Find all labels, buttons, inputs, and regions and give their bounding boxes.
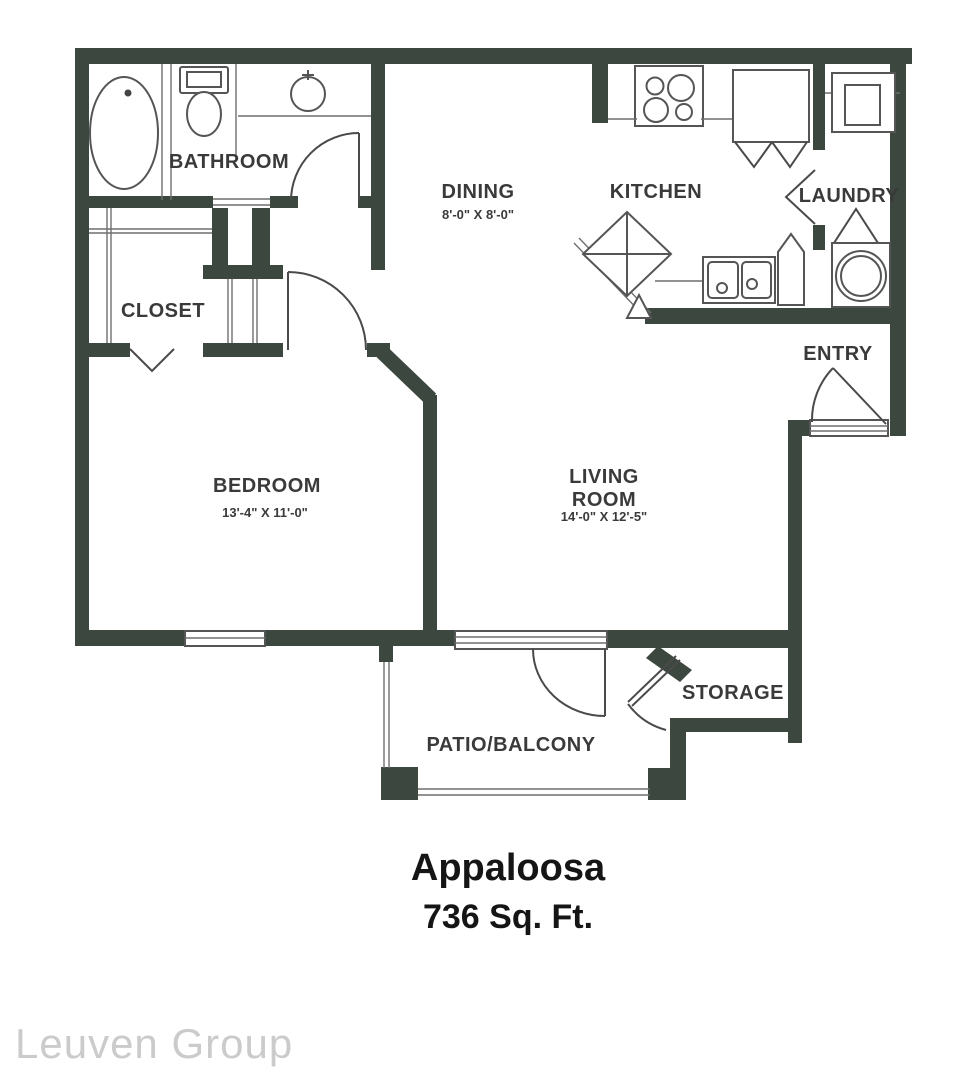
label-kitchen: KITCHEN <box>610 181 702 203</box>
bedroom-window <box>185 631 265 646</box>
bathroom-door <box>291 133 359 201</box>
dims-dining: 8'-0" X 8'-0" <box>442 207 514 222</box>
dryer <box>825 73 900 132</box>
kitchen-island <box>583 212 671 296</box>
label-closet: CLOSET <box>121 300 205 322</box>
floor-plan: BATHROOM CLOSET DINING 8'-0" X 8'-0" KIT… <box>0 0 964 1080</box>
bathroom-sink <box>291 70 325 111</box>
label-living-room-line1: LIVING <box>569 466 639 488</box>
bedroom-door <box>288 272 366 350</box>
label-bedroom: BEDROOM <box>213 475 321 497</box>
refrigerator <box>733 70 809 167</box>
stove <box>635 66 703 126</box>
washer <box>832 209 890 307</box>
label-dining: DINING <box>442 181 515 203</box>
label-entry: ENTRY <box>803 343 873 365</box>
label-living-room-line2: ROOM <box>572 489 636 511</box>
label-storage: STORAGE <box>682 682 784 704</box>
floor-plan-page: BATHROOM CLOSET DINING 8'-0" X 8'-0" KIT… <box>0 0 964 1080</box>
label-patio: PATIO/BALCONY <box>426 734 595 756</box>
toilet <box>180 67 228 136</box>
watermark: Leuven Group <box>15 1020 293 1067</box>
partitions-and-rails <box>89 64 650 795</box>
label-laundry: LAUNDRY <box>799 185 900 207</box>
patio-sliding-door <box>455 631 607 716</box>
tub-faucet-icon <box>125 90 132 97</box>
closet-bifold-door <box>130 349 174 371</box>
water-heater <box>778 234 804 305</box>
label-bathroom: BATHROOM <box>169 151 289 173</box>
plan-title: Appaloosa <box>411 847 606 889</box>
dims-bedroom: 13'-4" X 11'-0" <box>222 505 308 520</box>
plan-area: 736 Sq. Ft. <box>423 898 593 936</box>
kitchen-sink <box>703 257 775 303</box>
entry-door <box>810 368 888 436</box>
bathtub <box>90 77 158 189</box>
dims-living-room: 14'-0" X 12'-5" <box>561 509 647 524</box>
